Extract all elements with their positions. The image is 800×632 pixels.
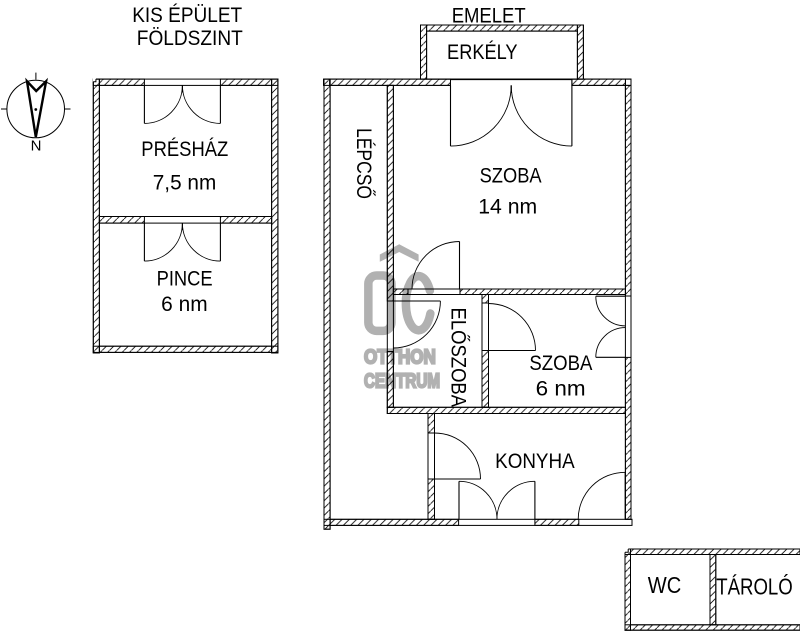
svg-text:6 nm: 6 nm	[161, 293, 208, 316]
svg-text:PINCE: PINCE	[157, 267, 213, 290]
svg-text:SZOBA: SZOBA	[480, 164, 543, 188]
svg-text:14 nm: 14 nm	[478, 195, 537, 219]
svg-text:KONYHA: KONYHA	[495, 449, 575, 473]
svg-text:OTTHON: OTTHON	[364, 346, 436, 368]
svg-text:LÉPCSŐ: LÉPCSŐ	[352, 128, 375, 199]
svg-text:EMELET: EMELET	[452, 4, 526, 27]
svg-text:SZOBA: SZOBA	[529, 351, 593, 375]
svg-text:TÁROLÓ: TÁROLÓ	[716, 573, 793, 599]
svg-text:7,5 nm: 7,5 nm	[153, 171, 217, 194]
svg-text:6 nm: 6 nm	[536, 377, 586, 401]
svg-text:ERKÉLY: ERKÉLY	[447, 41, 518, 64]
svg-text:FÖLDSZINT: FÖLDSZINT	[137, 27, 243, 50]
svg-text:CENTRUM: CENTRUM	[364, 371, 440, 393]
svg-text:KIS ÉPÜLET: KIS ÉPÜLET	[132, 4, 242, 27]
svg-text:WC: WC	[648, 572, 682, 598]
svg-text:PRÉSHÁZ: PRÉSHÁZ	[141, 138, 228, 161]
svg-text:ELŐSZOBA: ELŐSZOBA	[447, 308, 470, 408]
svg-text:N: N	[31, 138, 42, 155]
